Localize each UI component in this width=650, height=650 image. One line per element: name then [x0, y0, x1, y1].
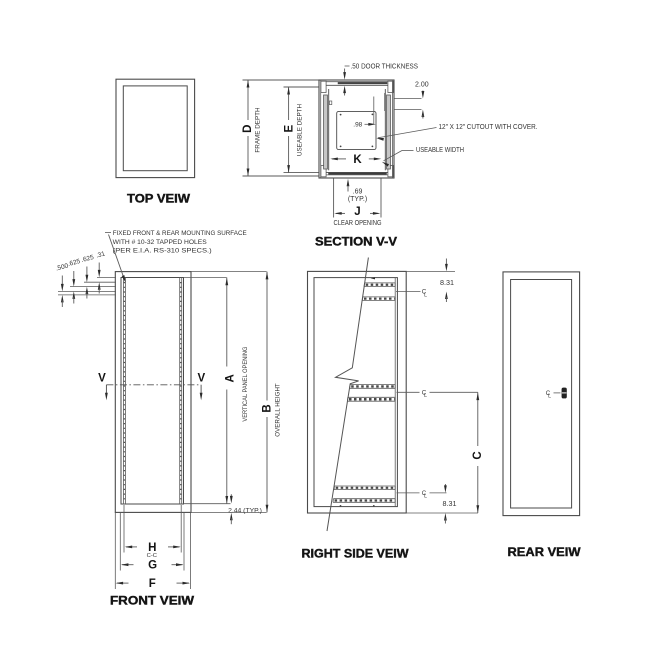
svg-text:F: F	[149, 578, 156, 590]
svg-text:REAR VEIW: REAR VEIW	[508, 546, 581, 559]
svg-text:TOP VEIW: TOP VEIW	[127, 192, 190, 205]
svg-text:V: V	[197, 373, 205, 385]
svg-text:D: D	[242, 125, 254, 133]
svg-text:FRAME DEPTH: FRAME DEPTH	[255, 107, 262, 153]
svg-text:SECTION V-V: SECTION V-V	[315, 235, 397, 248]
svg-text:L: L	[424, 393, 427, 399]
svg-text:L: L	[548, 394, 551, 400]
svg-text:USEABLE WIDTH: USEABLE WIDTH	[416, 147, 464, 154]
svg-text:K: K	[353, 154, 362, 166]
svg-text:.69: .69	[353, 189, 363, 196]
svg-text:L: L	[424, 292, 427, 298]
svg-text:E: E	[284, 125, 296, 133]
svg-text:V: V	[98, 373, 106, 385]
svg-text:RIGHT SIDE VEIW: RIGHT SIDE VEIW	[302, 547, 409, 560]
svg-text:.50 DOOR THICKNESS: .50 DOOR THICKNESS	[351, 63, 419, 70]
svg-text:(TYP.): (TYP.)	[348, 196, 367, 203]
svg-text:C: C	[472, 451, 484, 459]
svg-text:.625: .625	[67, 258, 81, 268]
svg-text:2.44 (TYP.): 2.44 (TYP.)	[228, 508, 262, 515]
svg-text:VERTICAL PANEL OPENING: VERTICAL PANEL OPENING	[242, 346, 249, 421]
svg-text:(PER E.I.A. RS-310 SPECS.): (PER E.I.A. RS-310 SPECS.)	[113, 248, 212, 255]
svg-text:.625: .625	[81, 254, 95, 264]
svg-text:2.00: 2.00	[415, 81, 429, 88]
svg-text:G: G	[148, 560, 157, 572]
svg-text:J: J	[354, 206, 360, 218]
svg-text:C-C: C-C	[147, 553, 157, 559]
svg-text:8.31: 8.31	[443, 499, 457, 508]
svg-text:.500: .500	[55, 262, 69, 272]
svg-text:12″ X 12″ CUTOUT WITH COV: 12″ X 12″ CUTOUT WITH COVER.	[439, 124, 538, 131]
svg-text:L: L	[424, 494, 427, 500]
svg-text:USEABLE DEPTH: USEABLE DEPTH	[296, 103, 303, 156]
svg-text:OVERALL HEIGHT: OVERALL HEIGHT	[274, 383, 281, 437]
svg-text:CLEAR OPENING: CLEAR OPENING	[334, 220, 382, 227]
svg-text:8.31: 8.31	[440, 278, 454, 287]
svg-text:.31: .31	[95, 250, 106, 259]
svg-text:B: B	[262, 404, 274, 412]
svg-text:FRONT VEIW: FRONT VEIW	[110, 595, 194, 608]
svg-text:.98: .98	[353, 122, 362, 129]
svg-text:FIXED FRONT & REAR MOUNTING SU: FIXED FRONT & REAR MOUNTING SURFACE	[113, 230, 248, 237]
svg-text:WITH # 10-32 TAPPED HOLES: WITH # 10-32 TAPPED HOLES	[113, 239, 208, 246]
svg-text:A: A	[224, 374, 236, 382]
